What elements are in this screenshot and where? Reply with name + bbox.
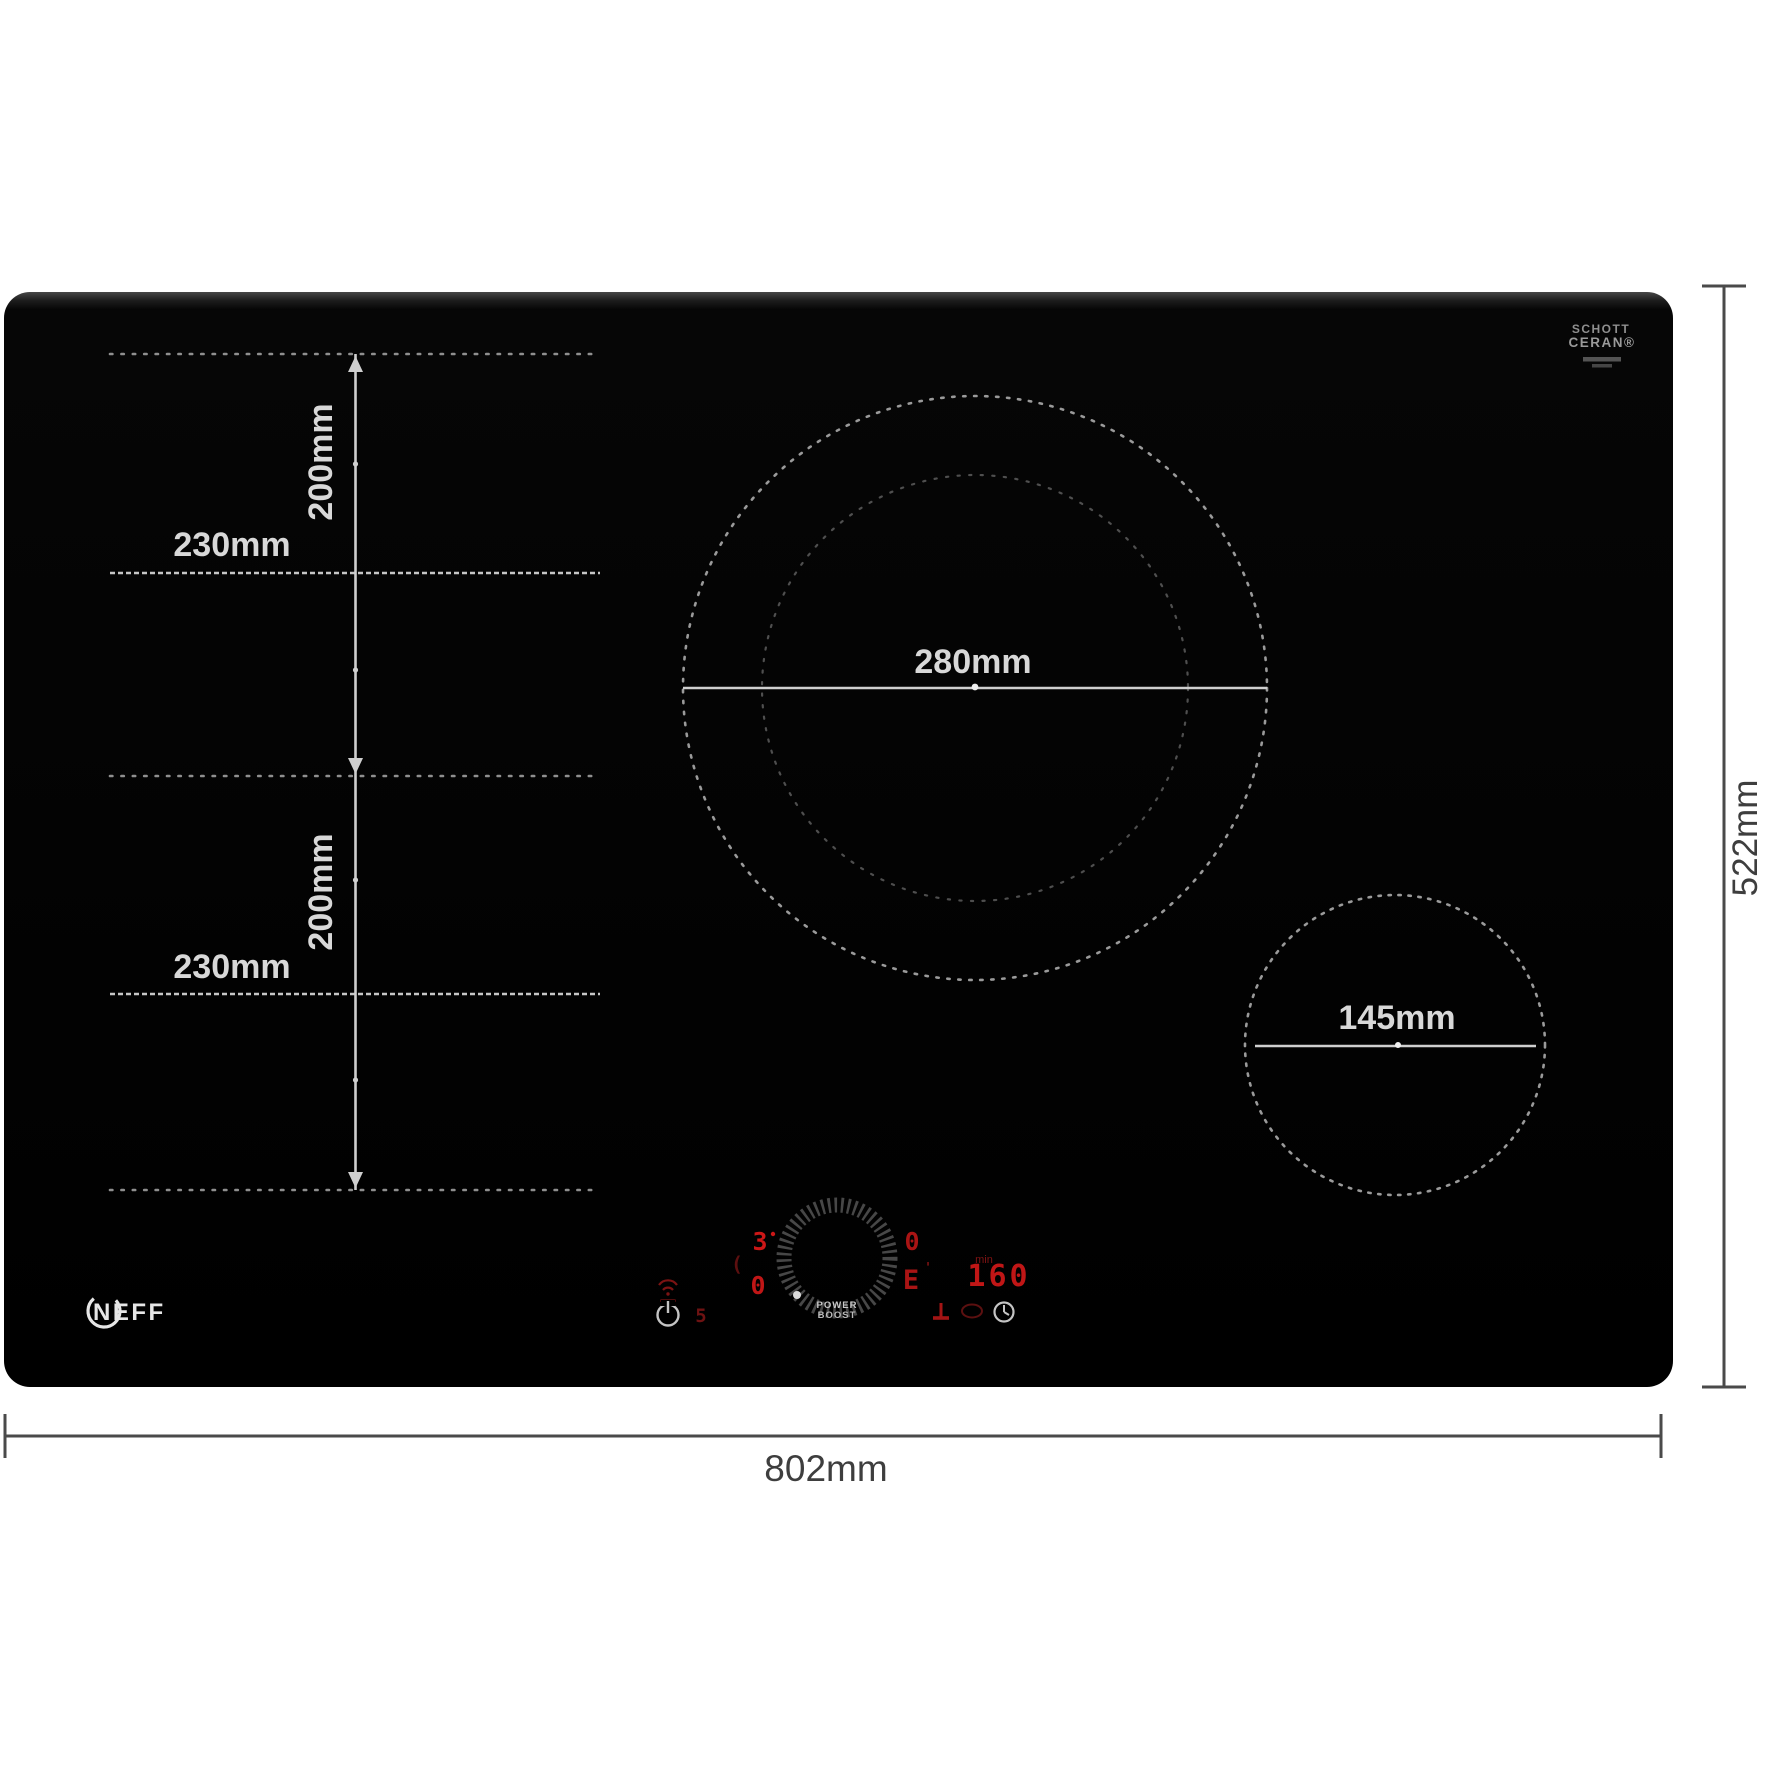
dimension-tick bbox=[353, 667, 358, 672]
display-right-tick: ' bbox=[924, 1261, 932, 1276]
display-left-bracket: ( bbox=[731, 1252, 743, 1276]
hob-diagram-svg: 230mm 230mm 200mm 200mm 280mm 145mm POWE… bbox=[0, 0, 1767, 1767]
overall-width-label: 802mm bbox=[764, 1448, 887, 1489]
schott-logo-line2: CERAN® bbox=[1569, 335, 1636, 350]
display-right-sub: E bbox=[903, 1265, 919, 1296]
knob-marker-dot bbox=[793, 1291, 801, 1299]
dimension-tick bbox=[353, 1077, 358, 1082]
center-dot bbox=[972, 684, 979, 691]
schott-logo-line1: SCHOTT bbox=[1572, 322, 1630, 336]
dimension-tick bbox=[353, 877, 358, 882]
small-zone-label: 145mm bbox=[1338, 999, 1455, 1037]
flex-bottom-height-label: 200mm bbox=[302, 833, 340, 950]
schott-subtext-bar bbox=[1592, 364, 1612, 368]
knob-caption-line2: BOOST bbox=[818, 1310, 857, 1321]
overall-depth-label: 522mm bbox=[1726, 780, 1765, 897]
flex-bottom-width-label: 230mm bbox=[173, 948, 290, 986]
wifi-icon bbox=[666, 1292, 669, 1295]
display-right-level: 0 bbox=[904, 1227, 919, 1256]
dimension-tick bbox=[353, 461, 358, 466]
boost-dot-indicator bbox=[771, 1232, 775, 1236]
center-dot bbox=[1395, 1042, 1401, 1048]
flex-top-width-label: 230mm bbox=[173, 526, 290, 564]
timer-display: 160 bbox=[967, 1259, 1030, 1294]
neff-logo-text: NEFF bbox=[93, 1299, 166, 1326]
schott-subtext-bar bbox=[1583, 357, 1621, 362]
overall-depth-dimension: 522mm bbox=[1702, 286, 1765, 1387]
hob-glass-panel bbox=[4, 292, 1673, 1387]
overall-width-dimension: 802mm bbox=[5, 1414, 1661, 1489]
display-left-small-digit: 5 bbox=[695, 1305, 706, 1327]
display-left-sub: 0 bbox=[750, 1271, 765, 1300]
flex-top-height-label: 200mm bbox=[302, 403, 340, 520]
product-dimension-diagram: 230mm 230mm 200mm 200mm 280mm 145mm POWE… bbox=[0, 0, 1767, 1767]
large-zone-label: 280mm bbox=[914, 643, 1031, 681]
display-left-level: 3 bbox=[752, 1227, 767, 1256]
